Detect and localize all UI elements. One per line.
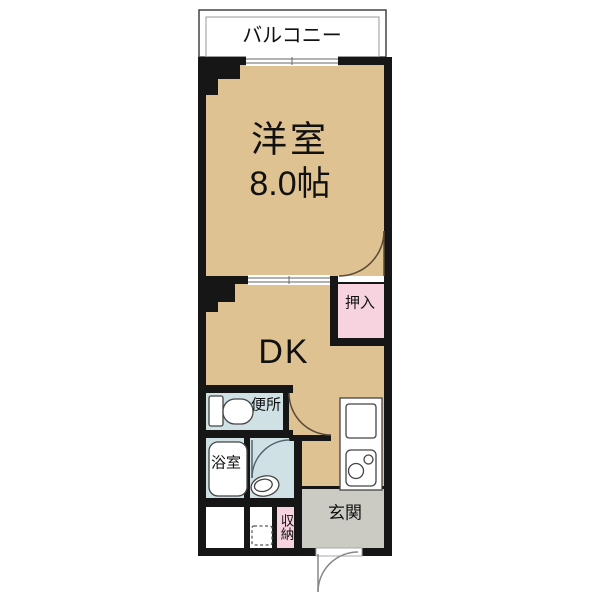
entrance-door-arc [318, 552, 358, 592]
bathroom-label: 浴室 [211, 455, 241, 472]
wall-oshiire-top-line [338, 282, 384, 284]
stove-burner-large [349, 464, 364, 479]
utility-box-1 [206, 507, 244, 548]
toilet-bowl-fixture [223, 399, 253, 424]
toilet-tank-fixture [209, 396, 223, 426]
kitchen-sink [346, 404, 376, 438]
wall-bottom [198, 548, 392, 556]
wall-left [198, 57, 206, 556]
wall-corner-block-top-a [206, 65, 240, 79]
stove-burner-small [364, 455, 373, 464]
floorplan-svg: バルコニー 洋室 8.0帖 押入 DK 便所 浴室 収納 玄関 [0, 0, 600, 600]
wall-corner-block-mid-a [206, 284, 235, 302]
wall-box-divider-1 [244, 507, 250, 548]
wall-partition-left [198, 276, 250, 284]
toilet-label: 便所 [251, 397, 281, 414]
utility-box-2 [250, 507, 272, 548]
dk-label: DK [258, 333, 309, 371]
balcony-label: バルコニー [242, 25, 342, 47]
wall-bath-bottom [198, 498, 302, 507]
entrance-label: 玄関 [328, 504, 362, 523]
storage-label: 収納 [279, 513, 295, 542]
wall-corner-block-mid-b [206, 302, 218, 312]
wall-toilet-right [283, 393, 289, 430]
wall-oshiire-left [330, 276, 338, 344]
western-room-label: 洋室 [251, 119, 329, 160]
wall-oshiire-bottom [330, 338, 392, 346]
floorplan-page: バルコニー 洋室 8.0帖 押入 DK 便所 浴室 収納 玄関 [0, 0, 600, 600]
wall-toilet-bottom [198, 430, 293, 438]
western-room-size-label: 8.0帖 [249, 165, 330, 203]
wall-box-divider-2 [272, 507, 277, 548]
wall-toilet-top [198, 385, 293, 393]
wall-corner-block-top-b [206, 79, 218, 95]
wall-washroom-right [294, 438, 302, 548]
wall-right [384, 57, 392, 556]
oshiire-label: 押入 [345, 295, 375, 312]
